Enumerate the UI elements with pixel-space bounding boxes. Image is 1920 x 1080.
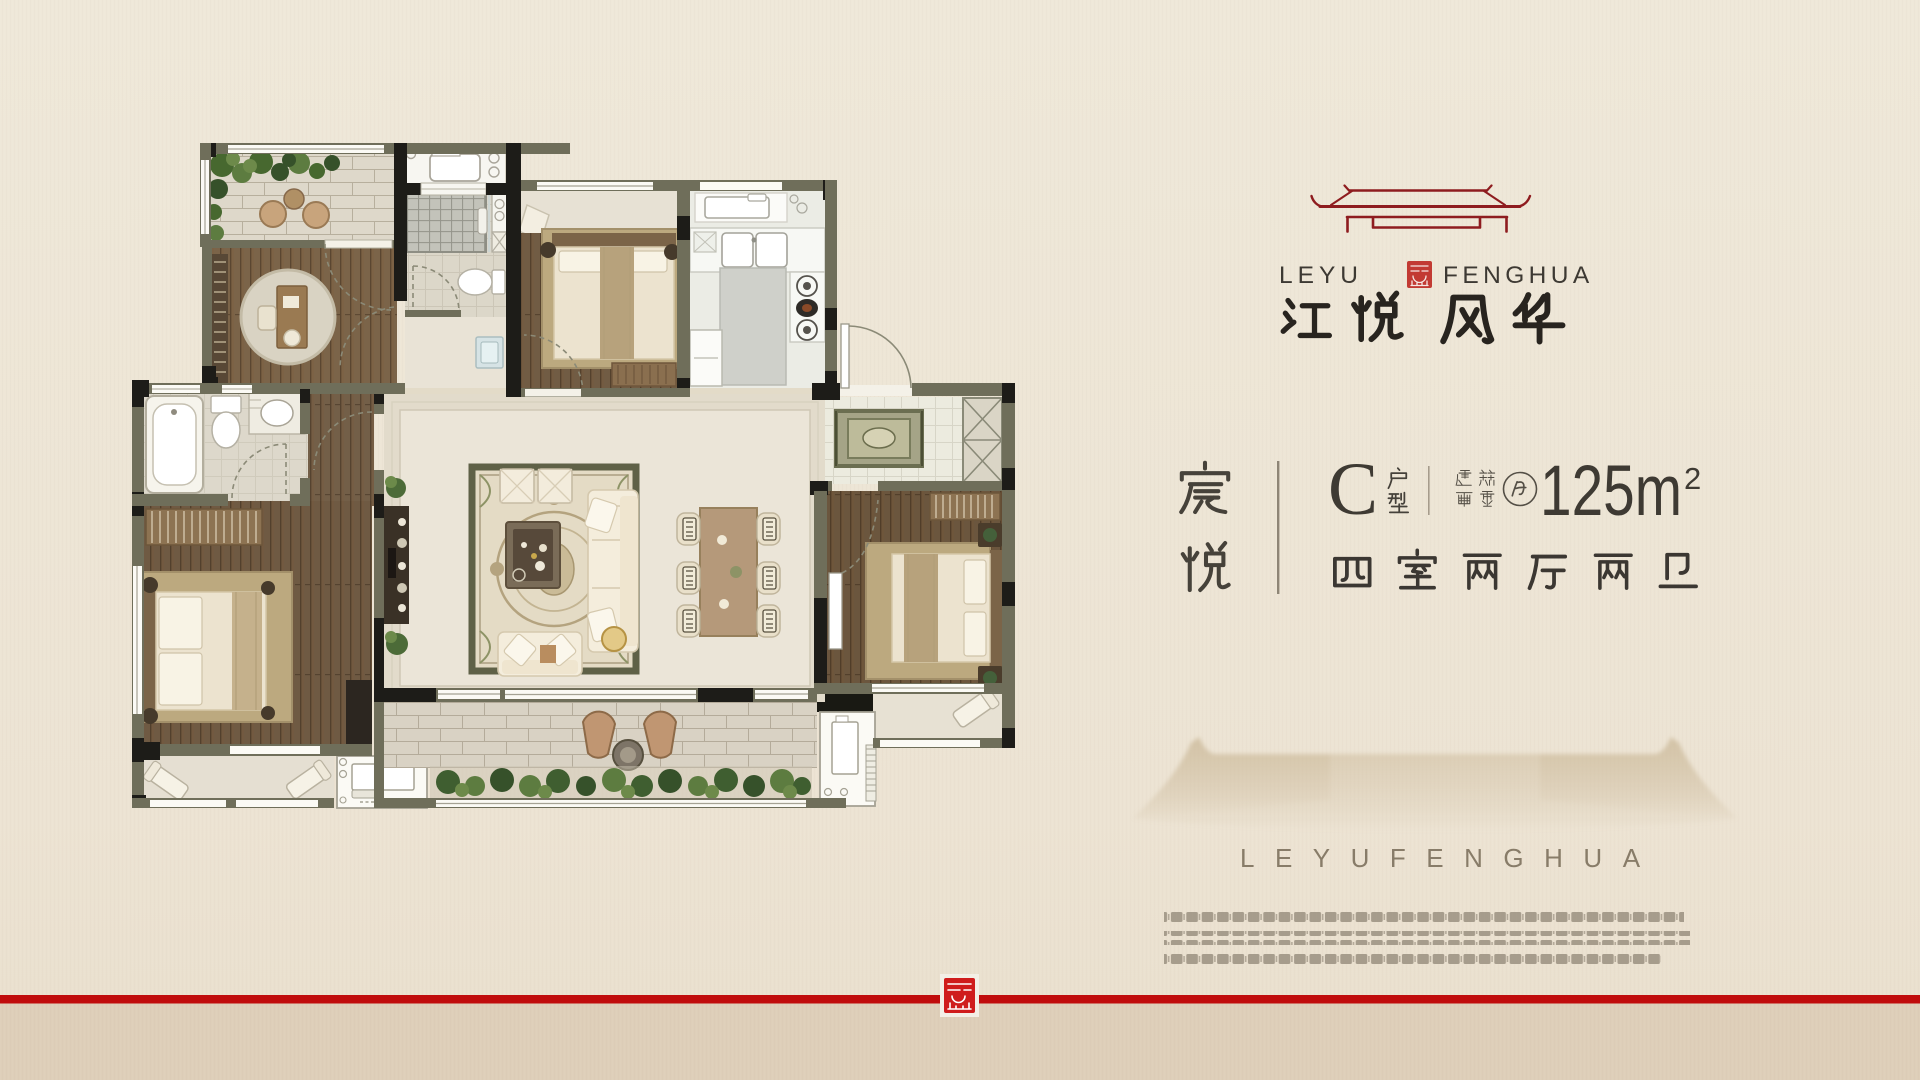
svg-text:LEYU: LEYU (1279, 262, 1363, 289)
svg-text:2: 2 (1684, 461, 1701, 496)
svg-text:C: C (1328, 448, 1378, 531)
svg-text:LEYUFENGHUA: LEYUFENGHUA (1240, 843, 1661, 873)
svg-text:FENGHUA: FENGHUA (1443, 262, 1594, 289)
svg-text:125m: 125m (1540, 452, 1682, 531)
